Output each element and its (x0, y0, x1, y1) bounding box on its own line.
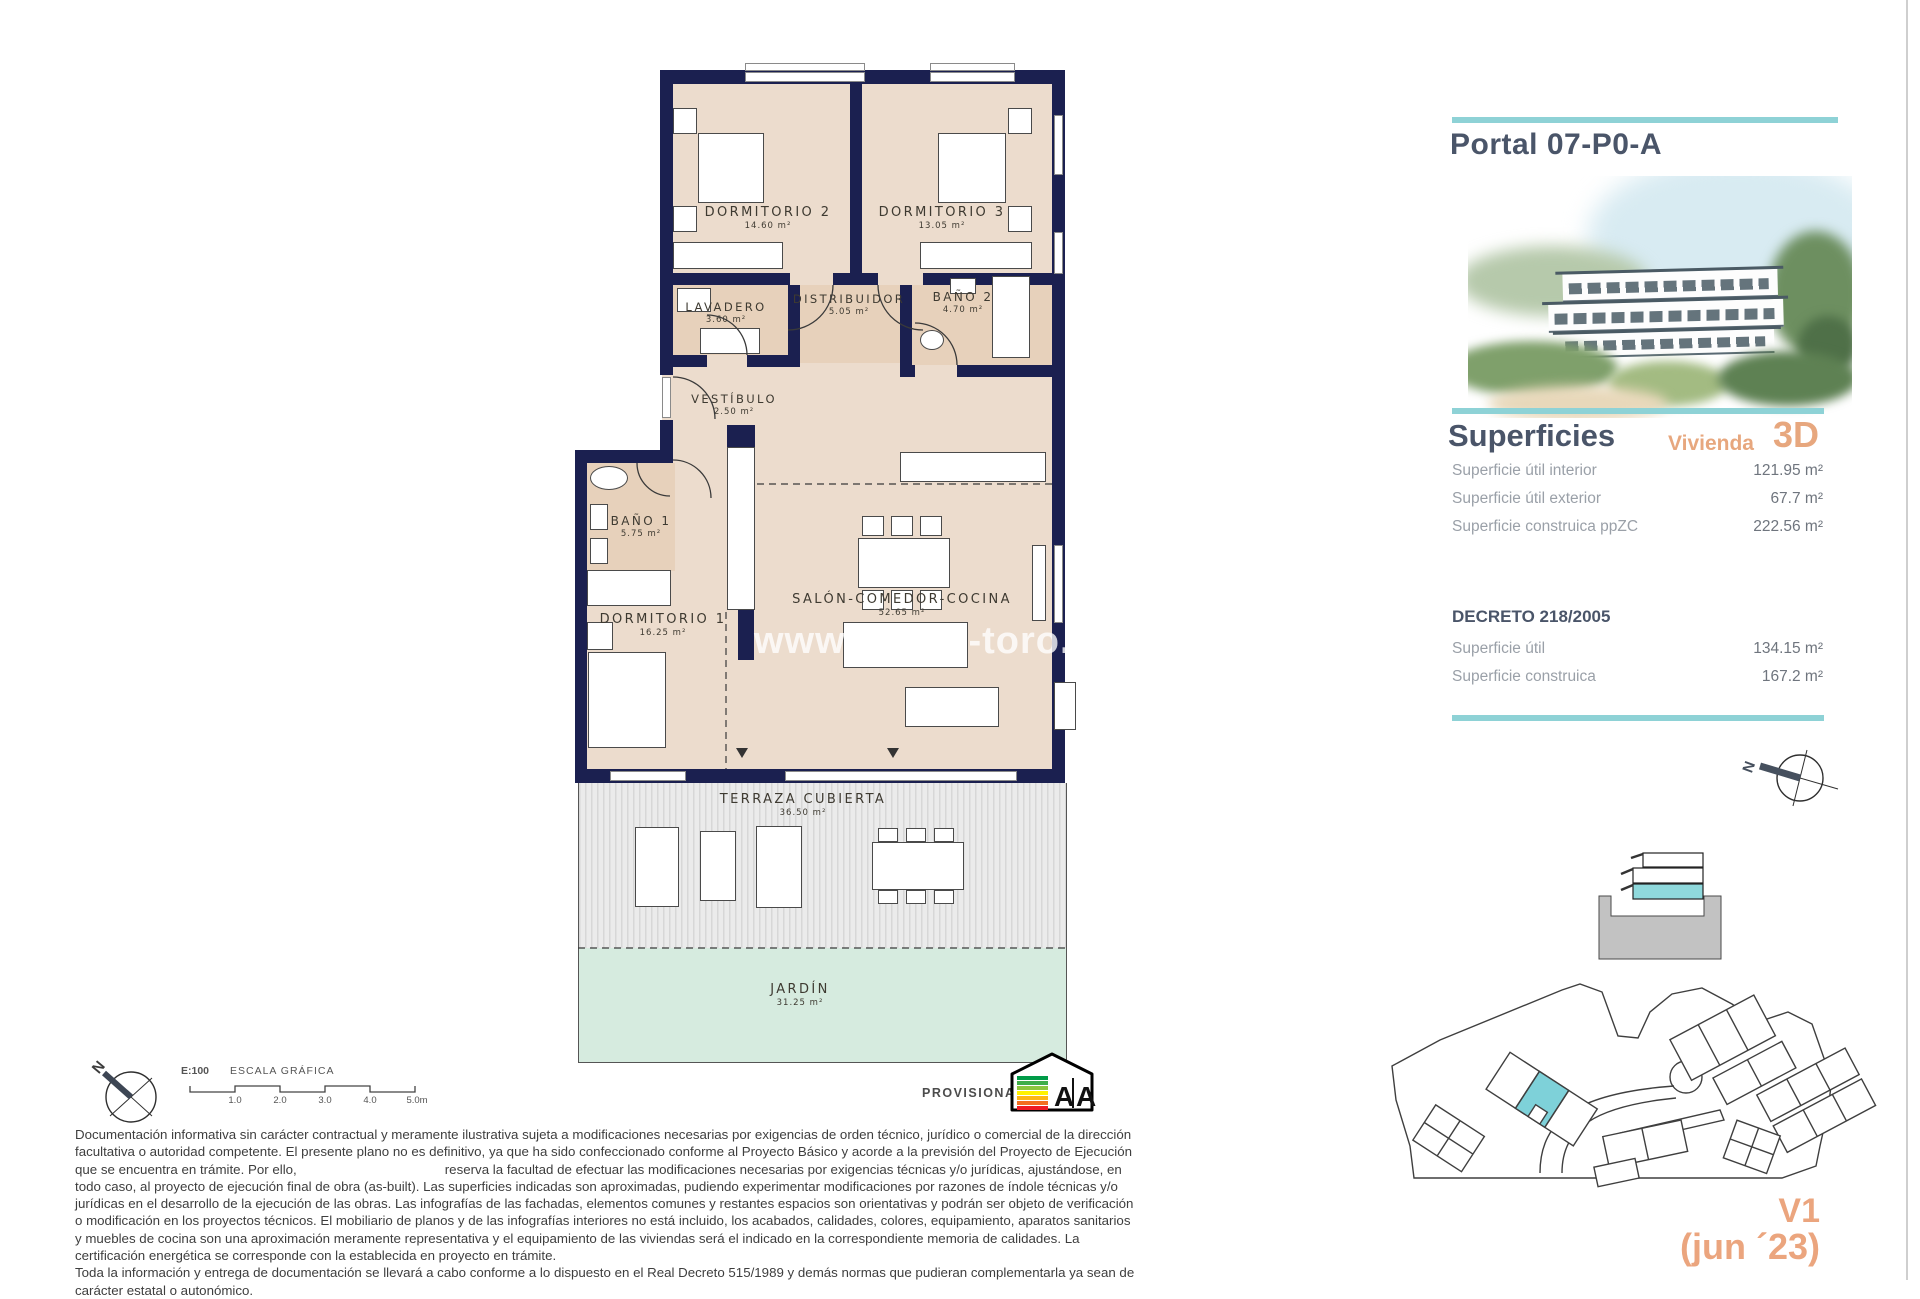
svg-text:1.0: 1.0 (228, 1095, 241, 1106)
svg-text:A: A (1076, 1081, 1096, 1112)
door-arcs (637, 285, 957, 498)
svg-text:4.0: 4.0 (363, 1095, 376, 1106)
dashed-lines (578, 484, 1065, 948)
svg-text:E:100: E:100 (181, 1065, 209, 1077)
compass-icon: N (89, 1058, 156, 1122)
section-diagram (1599, 853, 1721, 959)
svg-text:A: A (1054, 1081, 1074, 1112)
svg-text:2.0: 2.0 (273, 1095, 286, 1106)
door-marker-icon (736, 748, 899, 758)
site-plan (1392, 984, 1876, 1187)
energy-label-icon: A A (1012, 1054, 1096, 1112)
svg-text:N: N (1739, 759, 1759, 775)
compass-icon: N (1739, 750, 1838, 806)
svg-text:5.0m: 5.0m (406, 1095, 427, 1106)
svg-text:3.0: 3.0 (318, 1095, 331, 1106)
svg-text:ESCALA GRÁFICA: ESCALA GRÁFICA (230, 1064, 334, 1077)
watermark: www.grupo-toro.com (754, 620, 1153, 663)
scale-bar: E:100 ESCALA GRÁFICA 1.0 2.0 3.0 4.0 5.0… (181, 1064, 428, 1106)
